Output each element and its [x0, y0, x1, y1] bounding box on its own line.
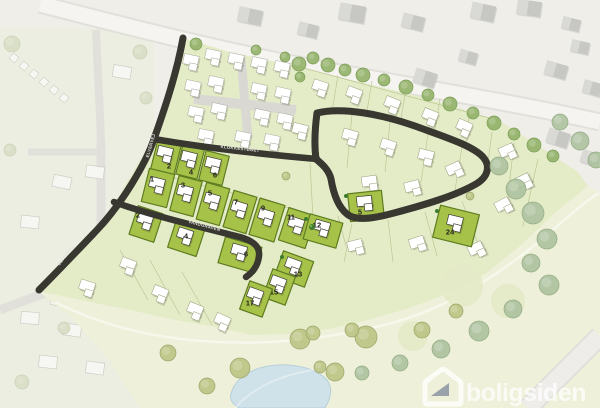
tree-icon: [399, 80, 413, 94]
tree-icon: [547, 150, 559, 162]
plot-number: 3: [181, 181, 185, 190]
corner-marker: [304, 217, 308, 221]
tree-icon: [378, 74, 390, 86]
tree-icon: [537, 229, 557, 249]
plot-number: 6: [213, 171, 217, 180]
plot-number: 7: [234, 198, 238, 207]
tree-icon: [506, 179, 526, 199]
tree-icon: [199, 378, 215, 394]
tree-icon: [58, 322, 70, 334]
tree-icon: [449, 304, 463, 318]
grass-mound: [441, 265, 483, 307]
tree-icon: [133, 45, 147, 59]
tree-icon: [282, 172, 290, 180]
tree-icon: [230, 358, 250, 378]
plot-number: 9: [261, 204, 265, 213]
tree-icon: [4, 144, 16, 156]
tree-icon: [522, 254, 540, 272]
tree-icon: [292, 57, 306, 71]
tree-icon: [295, 72, 305, 82]
plot-number: 11: [287, 213, 296, 222]
tree-icon: [504, 300, 522, 318]
tree-icon: [522, 202, 544, 224]
tree-icon: [432, 340, 450, 358]
tree-icon: [527, 138, 541, 152]
tree-icon: [422, 89, 434, 101]
tree-icon: [140, 92, 152, 104]
tree-icon: [571, 132, 589, 150]
tree-icon: [15, 375, 29, 389]
tree-icon: [190, 38, 202, 50]
plot-number: 24: [446, 228, 455, 237]
corner-marker: [280, 255, 284, 259]
tree-icon: [467, 107, 479, 119]
tree-icon: [443, 97, 457, 111]
watermark-text: boligsiden: [466, 379, 586, 407]
tree-icon: [414, 322, 430, 338]
tree-icon: [552, 114, 568, 130]
plot-number: 17: [246, 299, 254, 308]
tree-icon: [306, 326, 320, 340]
tree-icon: [355, 366, 369, 380]
existing-house-outline: [85, 165, 104, 179]
tree-icon: [345, 323, 359, 337]
tree-icon: [539, 275, 559, 295]
tree-icon: [508, 128, 520, 140]
existing-house-outline: [20, 215, 39, 229]
tree-icon: [490, 157, 508, 175]
tree-icon: [307, 52, 319, 64]
corner-marker: [344, 194, 348, 198]
small-tree-icon: [309, 224, 315, 230]
tree-icon: [4, 36, 20, 52]
site-plan-map: 246135791112246131517524 KLOKKESTØBETVAN…: [0, 0, 600, 408]
tree-icon: [314, 361, 326, 373]
tree-icon: [392, 355, 408, 371]
existing-house-outline: [21, 311, 40, 324]
plot-number: 6: [244, 250, 248, 259]
tree-icon: [466, 192, 474, 200]
tree-icon: [321, 58, 335, 72]
corner-marker: [435, 209, 439, 213]
tree-icon: [326, 363, 344, 381]
tree-icon: [469, 321, 489, 341]
tree-icon: [251, 45, 261, 55]
existing-house-outline: [85, 361, 104, 375]
plot-number: 2: [167, 162, 171, 171]
tree-icon: [356, 68, 370, 82]
tree-icon: [339, 64, 351, 76]
tree-icon: [160, 345, 176, 361]
tree-icon: [487, 116, 501, 130]
tree-icon: [280, 52, 290, 62]
existing-house-outline: [38, 355, 57, 369]
